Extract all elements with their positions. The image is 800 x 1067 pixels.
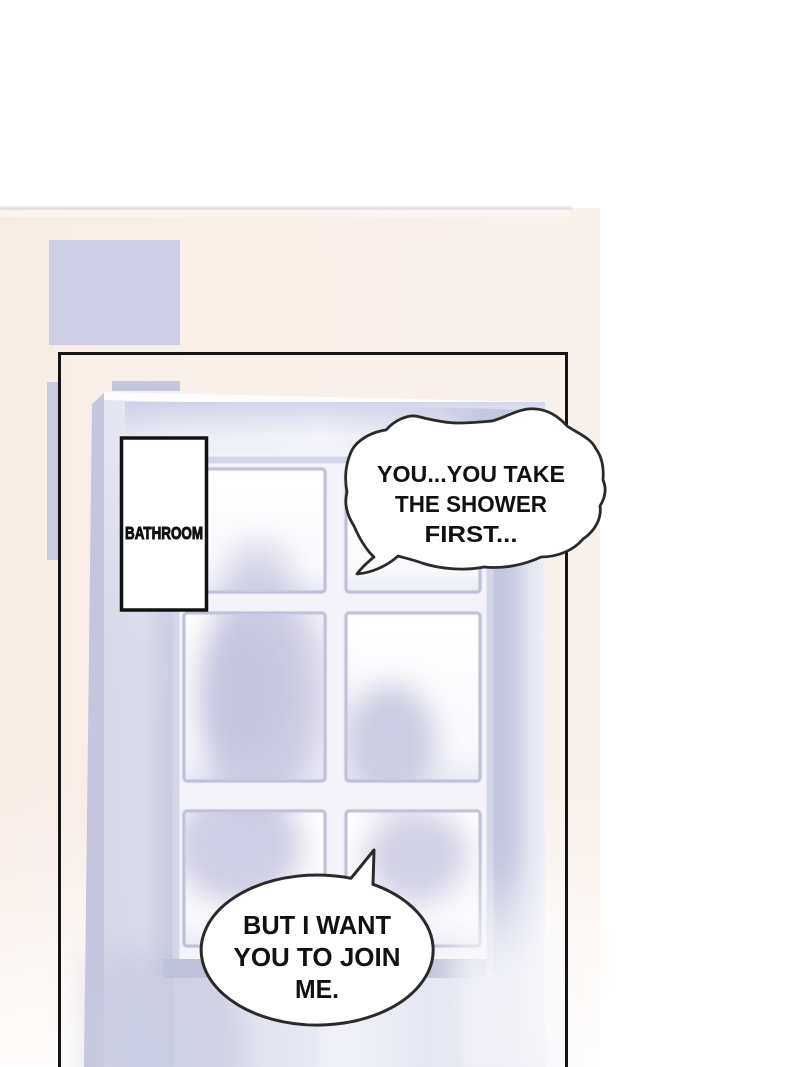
svg-text:THE SHOWER: THE SHOWER xyxy=(395,491,547,517)
svg-text:YOU...YOU TAKE: YOU...YOU TAKE xyxy=(377,461,565,487)
svg-text:BATHROOM: BATHROOM xyxy=(125,523,203,543)
svg-text:ME.: ME. xyxy=(295,974,339,1004)
svg-text:FIRST...: FIRST... xyxy=(425,521,518,547)
svg-text:BUT I WANT: BUT I WANT xyxy=(243,910,391,940)
svg-text:YOU TO JOIN: YOU TO JOIN xyxy=(234,942,401,972)
